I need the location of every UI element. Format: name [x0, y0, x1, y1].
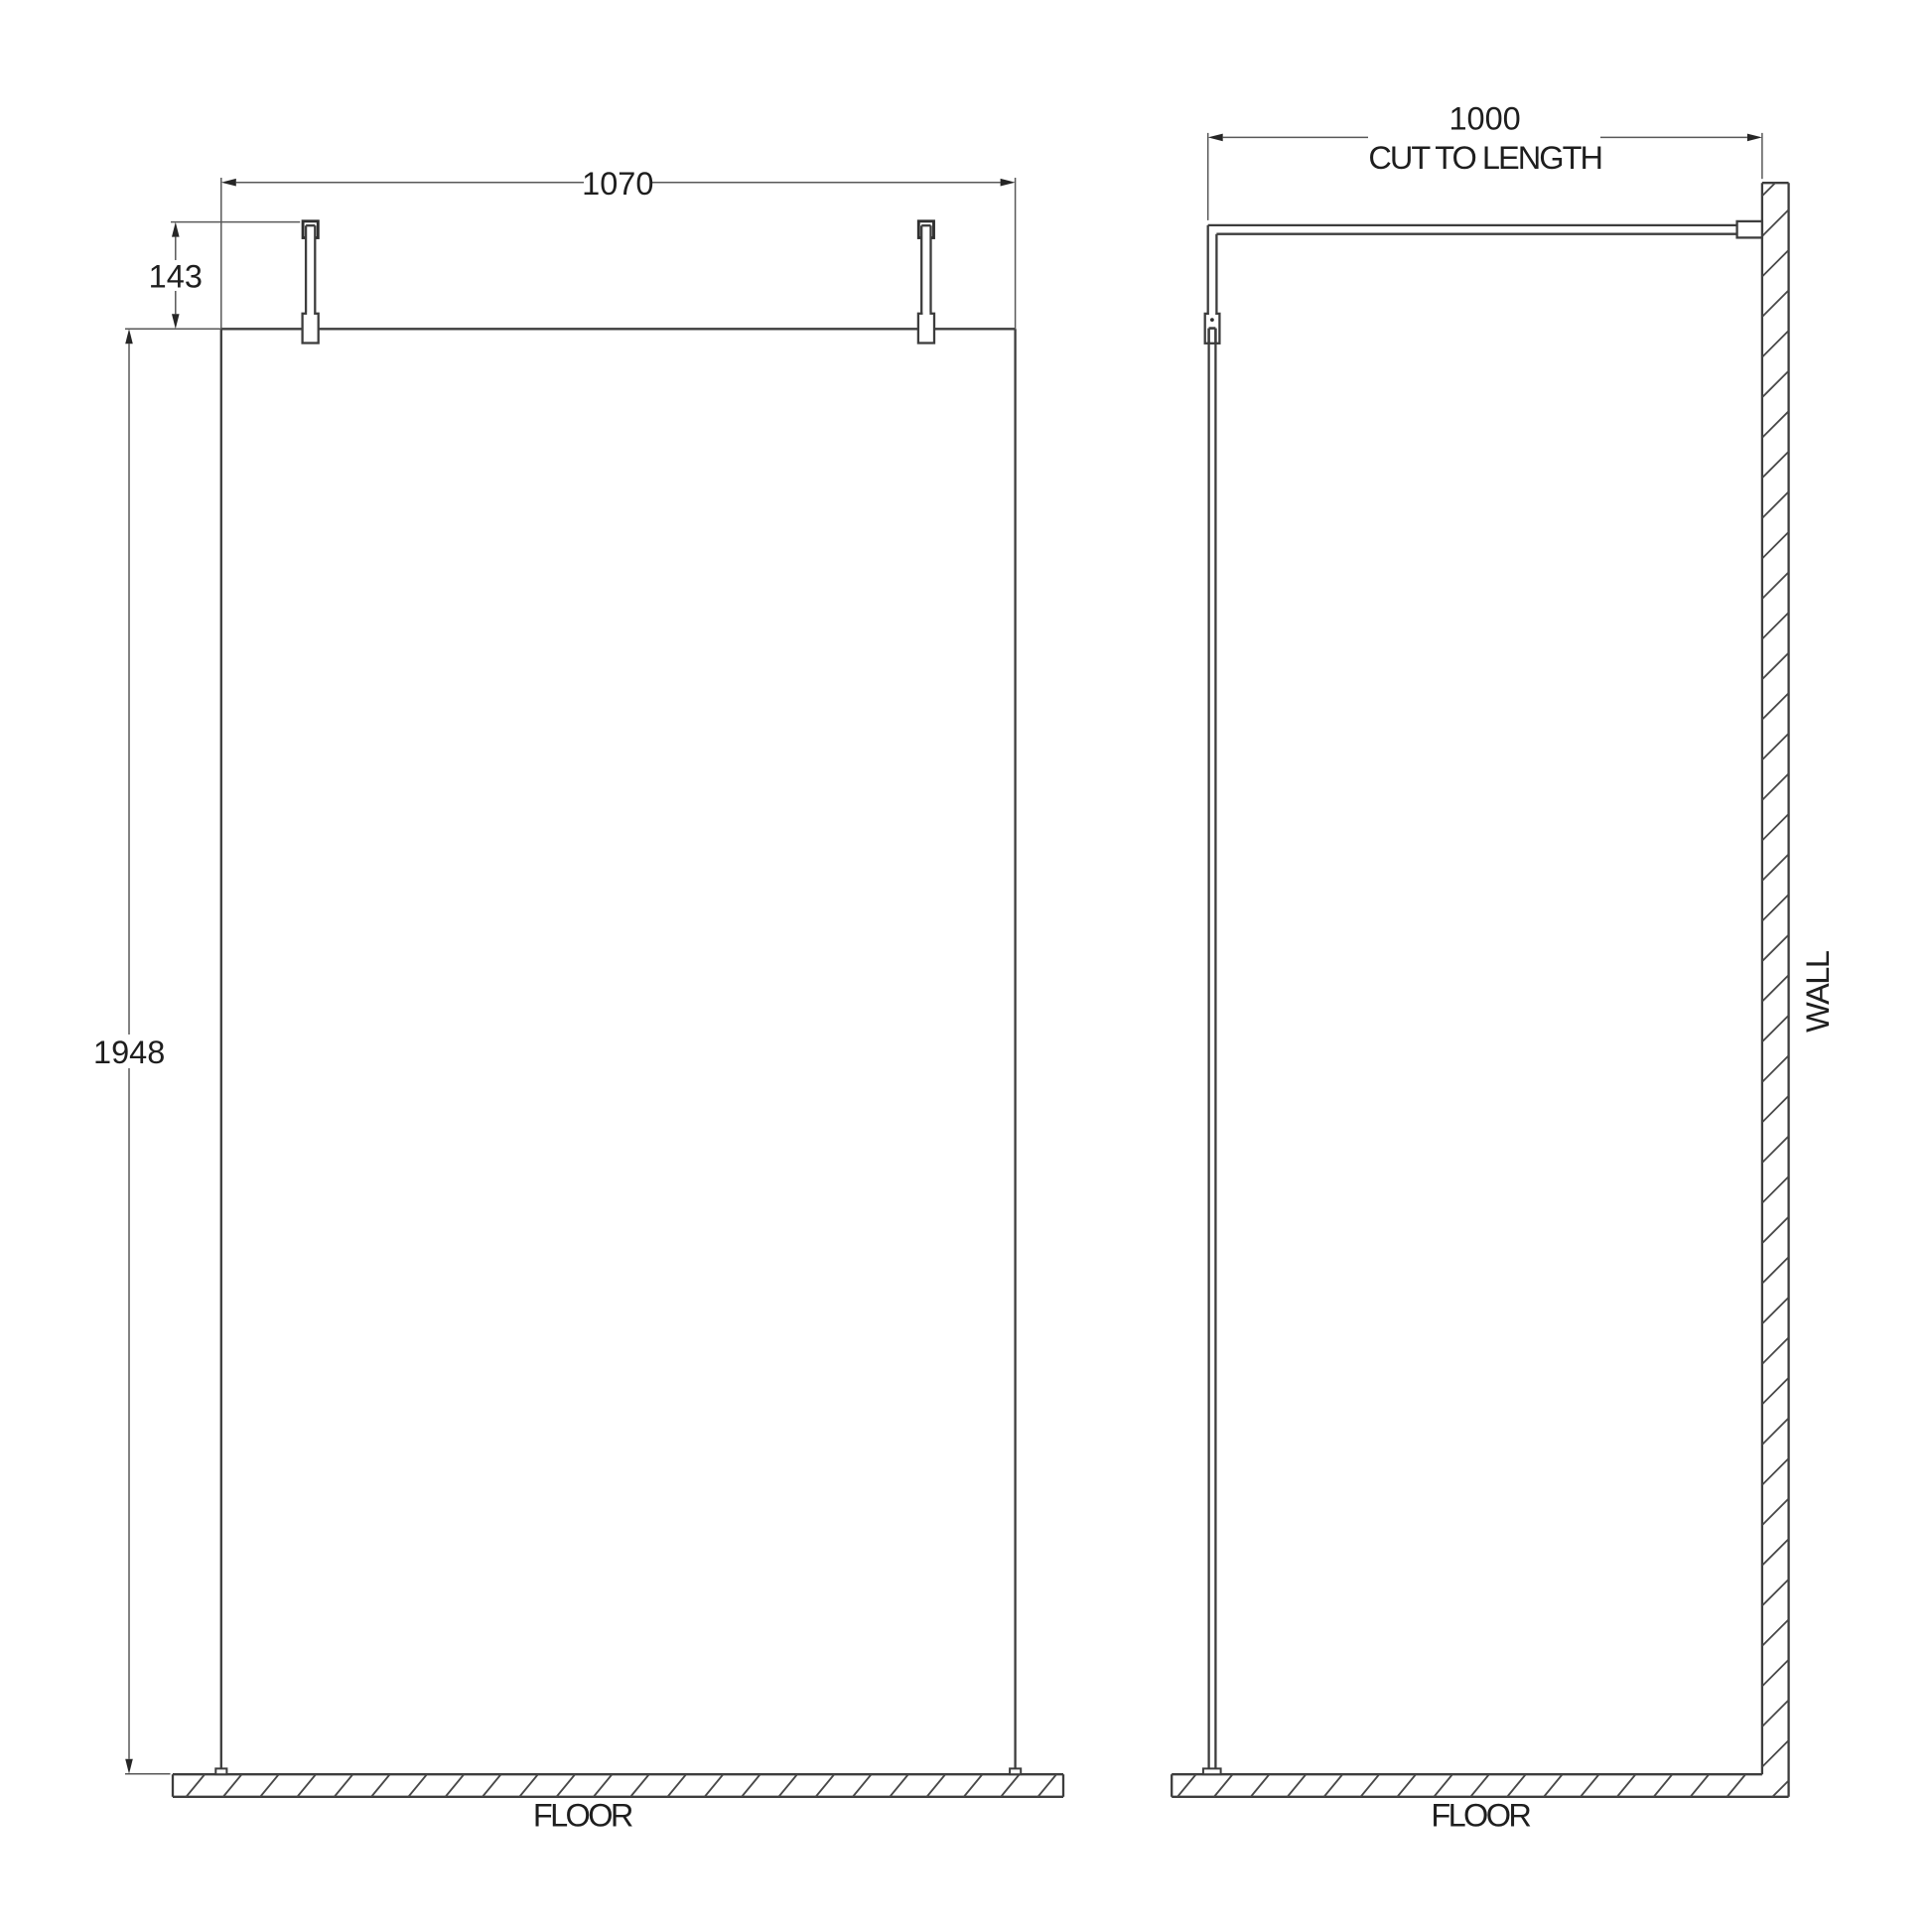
svg-text:WALL: WALL	[1800, 951, 1836, 1033]
svg-text:FLOOR: FLOOR	[533, 1797, 632, 1833]
svg-text:143: 143	[149, 259, 203, 295]
svg-text:CUT TO LENGTH: CUT TO LENGTH	[1368, 140, 1601, 176]
svg-text:1000: 1000	[1449, 101, 1520, 137]
svg-text:FLOOR: FLOOR	[1431, 1797, 1530, 1833]
svg-text:1948: 1948	[93, 1035, 165, 1070]
svg-text:1070: 1070	[582, 166, 653, 202]
